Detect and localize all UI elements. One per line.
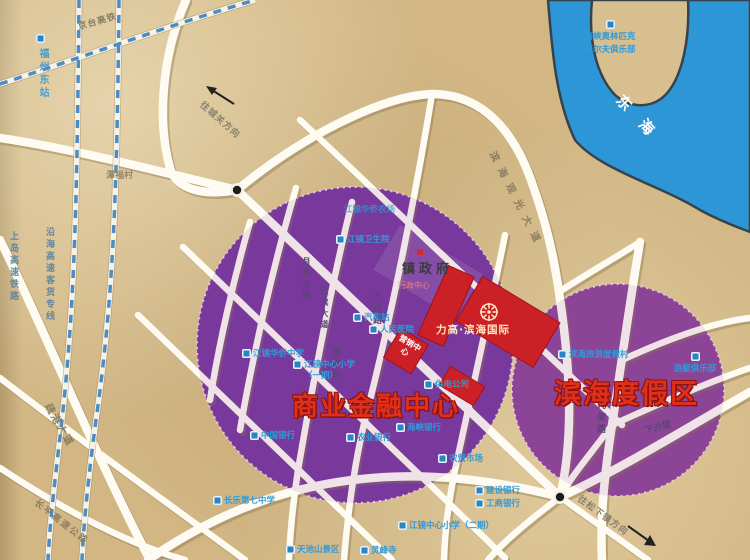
poi-nongye-yinhang: 农业银行 [346, 431, 391, 443]
poi-label: 供电公司 [435, 378, 469, 390]
zone-resort-title: 滨海度假区 [554, 372, 699, 411]
poi-label: 汽车站 [364, 311, 390, 323]
poi-icon [346, 433, 355, 442]
poi-label: 江镜华侨农场 [344, 203, 395, 215]
poi-icon [250, 431, 259, 440]
poi-label: 灵峰寺 [371, 544, 397, 556]
rail-yanhai-label: 沿海高速客货专线 [43, 227, 56, 323]
poi-label: 天池山景区 [297, 543, 340, 555]
project-name: 力高·滨海国际 [436, 322, 510, 337]
golf-poi-icon [606, 20, 615, 29]
poi-label: 江镜中心小学 [304, 360, 355, 371]
poi-icon [286, 545, 295, 554]
road-jiangbin-label: 江滨大道 [319, 287, 330, 331]
poi-icon [293, 360, 302, 369]
poi-tianchi: 天池山景区 [286, 543, 340, 555]
rail-shangdao-label: 上岛高速铁路 [7, 231, 20, 303]
station-label: 福州东站 [35, 48, 50, 100]
poi-label: 农贸市场 [449, 452, 483, 464]
poi-qiaochang: 江镜华侨农场 [344, 203, 395, 215]
poi-label: 海峡银行 [407, 421, 441, 433]
gov-marker [417, 249, 423, 255]
poi-icon [369, 325, 378, 334]
poi-icon [691, 352, 700, 361]
poi-label: 建设银行 [486, 484, 520, 496]
project-logo-icon [480, 303, 498, 321]
poi-icon [353, 313, 362, 322]
poi-haixia-yinhang: 海峡银行 [396, 421, 441, 433]
poi-label: 滨海旅游度假村 [569, 348, 629, 360]
poi-icon [242, 349, 251, 358]
poi-icon [438, 454, 447, 463]
poi-icon [213, 496, 222, 505]
golf-line1: 海峡奥林匹克 [584, 30, 635, 42]
poi-icon [558, 350, 567, 359]
poi-jianshe-yinhang: 建设银行 [475, 484, 520, 496]
poi-label: 农业银行 [357, 431, 391, 443]
poi-icon [424, 380, 433, 389]
poi-label: 江镜卫生院 [347, 233, 390, 245]
poi-qichezhan: 汽车站 [353, 311, 390, 323]
poi-label: 工商银行 [486, 497, 520, 509]
poi-icon [396, 423, 405, 432]
poi-label: 游艇俱乐部 [674, 362, 717, 374]
poi-zhongguo-yinhang: 中国银行 [250, 429, 295, 441]
golf-line2: 高尔夫俱乐部 [584, 43, 635, 55]
poi-gongdian: 供电公司 [424, 378, 469, 390]
poi-xiaoxue-phase2: 江镜中心小学（二期） [398, 519, 494, 531]
poi-youting: 游艇俱乐部 [664, 352, 726, 374]
poi-icon [475, 486, 484, 495]
poi-renmin-yiyuan: 人民医院 [369, 323, 414, 335]
poi-gongshang-yinhang: 工商银行 [475, 497, 520, 509]
map-canvas[interactable]: 东海 海峡奥林匹克 高尔夫俱乐部 京台高铁 福州东站 上岛高速铁路 沿海高速客货… [0, 0, 750, 560]
poi-icon [475, 499, 484, 508]
station-icon [36, 34, 45, 43]
poi-weishengyuan: 江镜卫生院 [336, 233, 390, 245]
map-graphics [0, 0, 750, 560]
zone-commercial-title: 商业金融中心 [292, 386, 460, 423]
poi-huaqiao-zhongxue: 江镜华侨中学 [242, 347, 304, 359]
poi-label: 人民医院 [380, 323, 414, 335]
poi-icon [398, 521, 407, 530]
golf-club-label: 海峡奥林匹克 高尔夫俱乐部 [570, 20, 650, 55]
poi-label-phase: （一期） [304, 371, 355, 382]
poi-nongmao: 农贸市场 [438, 452, 483, 464]
poi-qizhong: 长乐第七中学 [213, 494, 275, 506]
poi-label: 江镜中心小学（二期） [409, 519, 494, 531]
gov-sub-label: 行政中心 [398, 280, 430, 291]
poi-icon [336, 235, 345, 244]
poi-label: 长乐第七中学 [224, 494, 275, 506]
gov-label: 镇政府 [402, 258, 453, 277]
poi-label: 中国银行 [261, 429, 295, 441]
poi-lingfeng: 灵峰寺 [360, 544, 397, 556]
poi-dujiacun: 滨海旅游度假村 [558, 348, 629, 360]
poi-label: 江镜华侨中学 [253, 347, 304, 359]
poi-icon [360, 546, 369, 555]
road-yueliang-label: 月亮北路 [301, 257, 312, 301]
poi-xiaoxue-phase1: 江镜中心小学 （一期） [293, 360, 355, 382]
village-tanfu: 潭福村 [106, 168, 133, 181]
